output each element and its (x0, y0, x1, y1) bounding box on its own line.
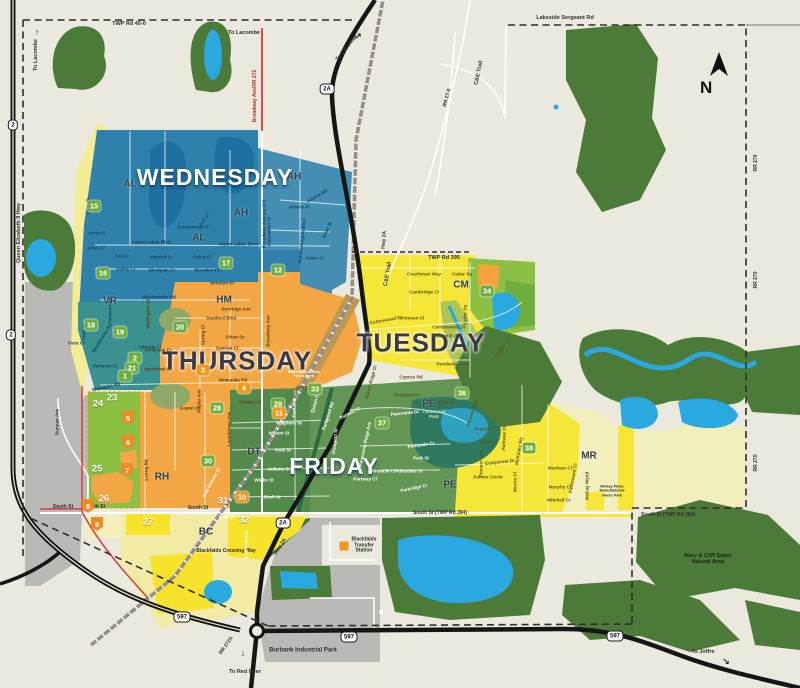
north-arrow-icon (708, 52, 730, 78)
road-end-dot (379, 610, 383, 614)
blackfalds-collection-day-map: N WEDNESDAYTHURSDAYTUESDAYFRIDAYALAHAHAL… (0, 0, 800, 688)
compass-n-letter: N (700, 78, 712, 98)
zone-west-green-strip (88, 392, 140, 508)
roundabout (251, 625, 264, 638)
map-canvas (0, 0, 800, 688)
